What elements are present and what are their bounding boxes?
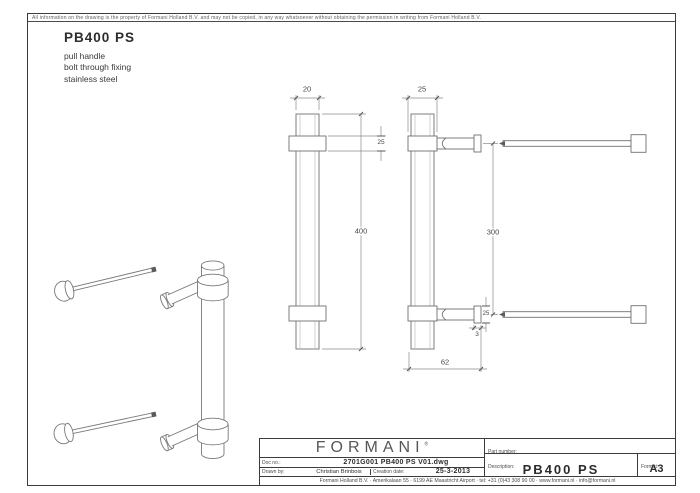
doc-no-value: 2701G001 PB400 PS V01.dwg	[308, 459, 484, 466]
title-block-left: FORMANI® Doc no.: 2701G001 PB400 PS V01.…	[260, 439, 485, 476]
side-view-drawing	[408, 114, 481, 349]
company-footer: Formani Holland B.V. · Amerikalaan 55 · …	[260, 476, 675, 485]
format-value: A3	[638, 463, 675, 475]
dim-front-length: 400	[354, 227, 369, 235]
doc-no-label: Doc no.:	[260, 460, 308, 466]
part-number-row: Part number:	[485, 439, 675, 454]
creation-date-value: 25-3-2013	[422, 468, 484, 475]
brand-logo: FORMANI®	[260, 439, 484, 458]
title-block: FORMANI® Doc no.: 2701G001 PB400 PS V01.…	[259, 438, 675, 485]
isometric-view-drawing	[52, 259, 228, 458]
drawn-by-label: Drawn by:	[260, 469, 308, 475]
dim-side-flange-thickness: 3	[474, 332, 480, 339]
drawn-by-value: Christian Brinbois	[308, 469, 370, 475]
doc-no-row: Doc no.: 2701G001 PB400 PS V01.dwg	[260, 458, 484, 467]
format-cell: Format: A3	[638, 454, 675, 476]
dim-front-collar: 25	[376, 140, 385, 147]
title-block-right: Part number: Description: PB400 PS Forma…	[485, 439, 675, 476]
drawn-by-row: Drawn by: Christian Brinbois Creation da…	[260, 468, 484, 476]
description-value: PB400 PS	[485, 462, 637, 477]
registered-mark: ®	[425, 442, 429, 448]
company-footer-text: Formani Holland B.V. · Amerikalaan 55 · …	[320, 478, 616, 484]
front-view-drawing	[289, 114, 326, 349]
dim-side-width: 25	[417, 85, 427, 93]
drawing-sheet: All information on the drawing is the pr…	[27, 13, 676, 486]
dim-front-width: 20	[302, 85, 312, 93]
dim-side-depth: 62	[440, 358, 450, 366]
creation-date-label: Creation date:	[370, 469, 422, 475]
description-cell: Description: PB400 PS	[485, 454, 638, 476]
drawing-canvas	[28, 14, 677, 487]
brand-name: FORMANI	[316, 439, 425, 456]
dim-side-flange-dia: 25	[482, 311, 491, 317]
dim-side-centers: 300	[486, 228, 501, 236]
bolt-drawing	[499, 135, 646, 324]
